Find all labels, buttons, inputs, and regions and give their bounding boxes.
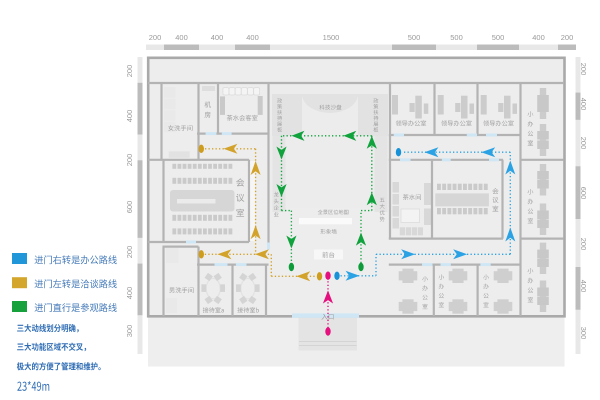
svg-text:200: 200 (125, 246, 134, 259)
svg-text:400: 400 (125, 287, 134, 300)
svg-text:200: 200 (579, 63, 588, 76)
svg-text:200: 200 (561, 33, 574, 42)
svg-text:400: 400 (579, 98, 588, 111)
svg-text:300: 300 (125, 325, 134, 338)
svg-text:200: 200 (125, 65, 134, 78)
svg-text:200: 200 (149, 33, 162, 42)
svg-text:1500: 1500 (323, 33, 340, 42)
svg-text:400: 400 (211, 33, 224, 42)
svg-text:200: 200 (579, 137, 588, 150)
svg-text:500: 500 (408, 33, 421, 42)
svg-text:500: 500 (450, 33, 463, 42)
svg-text:300: 300 (579, 327, 588, 340)
svg-text:400: 400 (246, 33, 259, 42)
svg-text:200: 200 (579, 238, 588, 251)
svg-text:400: 400 (579, 280, 588, 293)
svg-text:400: 400 (175, 33, 188, 42)
svg-text:400: 400 (532, 33, 545, 42)
svg-text:400: 400 (125, 110, 134, 123)
svg-text:600: 600 (125, 201, 134, 214)
svg-text:500: 500 (492, 33, 505, 42)
svg-text:600: 600 (579, 187, 588, 200)
svg-text:200: 200 (125, 154, 134, 167)
